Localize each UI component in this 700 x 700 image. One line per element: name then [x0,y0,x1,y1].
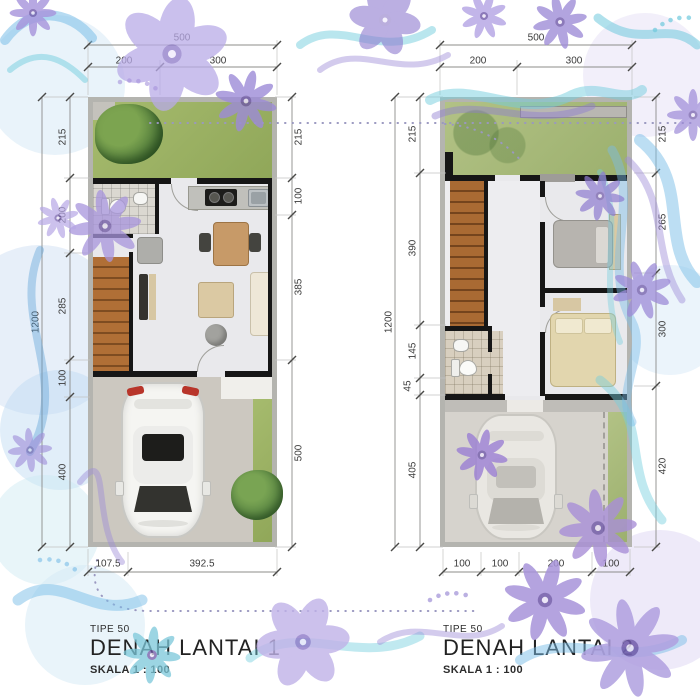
floor2-scale-label: SKALA 1 : 100 [443,664,634,676]
floor2-type-label: TIPE 50 [443,624,634,635]
dim-label: 420 [658,458,669,475]
dim-label: 392.5 [189,559,214,570]
dim-label: 100 [492,559,509,570]
floor1-type-label: TIPE 50 [90,624,281,635]
dim-label: 500 [294,445,305,462]
floor1-titleblock: TIPE 50 DENAH LANTAI 1 SKALA 1 : 100 [90,624,281,676]
dim-label: 400 [58,464,69,481]
dim-label: 1200 [384,311,395,333]
dim-label: 200 [548,559,565,570]
dim-label: 215 [294,129,305,146]
floor2-title: DENAH LANTAI 2 [443,635,634,661]
dim-label: 300 [210,56,227,67]
dim-label: 215 [58,129,69,146]
dim-label: 1200 [31,311,42,333]
floor1-title: DENAH LANTAI 1 [90,635,281,661]
dim-label: 45 [403,380,414,391]
dim-label: 200 [116,56,133,67]
dim-label: 500 [528,33,545,44]
dim-label: 300 [658,321,669,338]
dimension-linework [0,0,700,700]
dim-label: 265 [658,214,669,231]
dim-label: 215 [658,126,669,143]
dim-label: 390 [408,240,419,257]
extension-lines [44,40,660,576]
dim-label: 145 [408,343,419,360]
dim-label: 200 [58,207,69,224]
dim-label: 215 [408,126,419,143]
dim-label: 405 [408,462,419,479]
dim-label: 100 [603,559,620,570]
dim-label: 200 [470,56,487,67]
dimension-ticks [38,41,660,576]
dim-label: 107.5 [95,559,120,570]
floor2-titleblock: TIPE 50 DENAH LANTAI 2 SKALA 1 : 100 [443,624,634,676]
dim-label: 285 [58,298,69,315]
dim-label: 100 [454,559,471,570]
floor1-scale-label: SKALA 1 : 100 [90,664,281,676]
dimension-lines [42,45,656,572]
dim-label: 100 [58,370,69,387]
dim-label: 385 [294,279,305,296]
dim-label: 300 [566,56,583,67]
dim-label: 500 [174,33,191,44]
level-connector-dotted [95,123,697,611]
dim-label: 100 [294,188,305,205]
floorplan-sheet: 500 200 300 1200 215 200 285 100 400 215… [0,0,700,700]
